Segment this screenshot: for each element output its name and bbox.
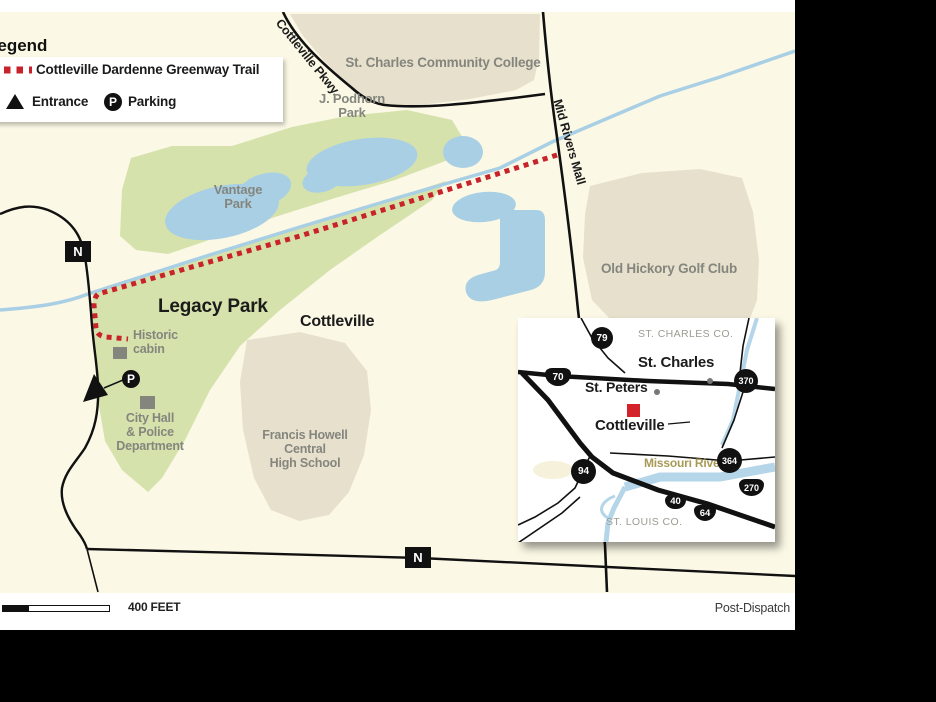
college-label: St. Charles Community College	[328, 56, 558, 71]
legend-title: Legend	[0, 36, 47, 56]
scale-bar-outline	[28, 605, 110, 612]
route-370-shield: 370	[734, 369, 758, 393]
inset-st-charles-county-label: ST. CHARLES CO.	[638, 329, 770, 341]
entrance-icon	[6, 94, 24, 109]
route-n-shield-south: N	[405, 547, 431, 568]
legacy-park-label: Legacy Park	[158, 297, 268, 318]
inset-st-peters-label: St. Peters	[585, 380, 648, 395]
scale-bar-filled	[2, 605, 28, 612]
map-graphic: Cottleville Pkwy. Mid Rivers Mall St. Ch…	[0, 0, 795, 630]
scale-label: 400 FEET	[128, 601, 180, 614]
route-79-shield: 79	[591, 327, 613, 349]
parking-icon: P	[122, 370, 140, 388]
vantage-park-label: Vantage Park	[193, 183, 283, 212]
route-n-shield-west: N	[65, 241, 91, 262]
inset-cottleville-label: Cottleville	[595, 418, 664, 435]
podhorn-park-label: J. Podhorn Park	[307, 92, 397, 121]
cottleville-label: Cottleville	[300, 313, 374, 331]
inset-st-charles-dot	[707, 378, 713, 384]
legend-parking-label: Parking	[128, 95, 176, 110]
locator-inset-map: ST. CHARLES CO. ST. LOUIS CO. St. Charle…	[518, 318, 775, 542]
inset-land-patch	[533, 461, 573, 479]
legend-parking-icon: P	[104, 93, 122, 111]
route-94-shield: 94	[571, 459, 596, 484]
high-school-label: Francis Howell Central High School	[253, 429, 357, 470]
inset-cottleville-marker	[627, 404, 640, 417]
legend-box: Cottleville Dardenne Greenway Trail Entr…	[0, 57, 283, 122]
inset-st-peters-dot	[654, 389, 660, 395]
legend-entrance-label: Entrance	[32, 95, 88, 110]
historic-cabin-label: Historic cabin	[133, 329, 193, 357]
trail-sample-icon	[4, 65, 32, 75]
historic-cabin-marker	[113, 347, 127, 359]
inset-st-charles-label: St. Charles	[638, 355, 714, 372]
city-hall-label: City Hall & Police Department	[106, 412, 194, 453]
golf-club-label: Old Hickory Golf Club	[584, 262, 754, 277]
legend-trail-label: Cottleville Dardenne Greenway Trail	[36, 63, 259, 78]
golf-club-parcel	[583, 169, 759, 322]
pond-north	[443, 136, 483, 168]
city-hall-marker	[140, 396, 155, 409]
inset-missouri-river-label: Missouri River	[644, 457, 724, 470]
route-364-shield: 364	[717, 448, 742, 473]
credit-label: Post-Dispatch	[690, 602, 790, 616]
